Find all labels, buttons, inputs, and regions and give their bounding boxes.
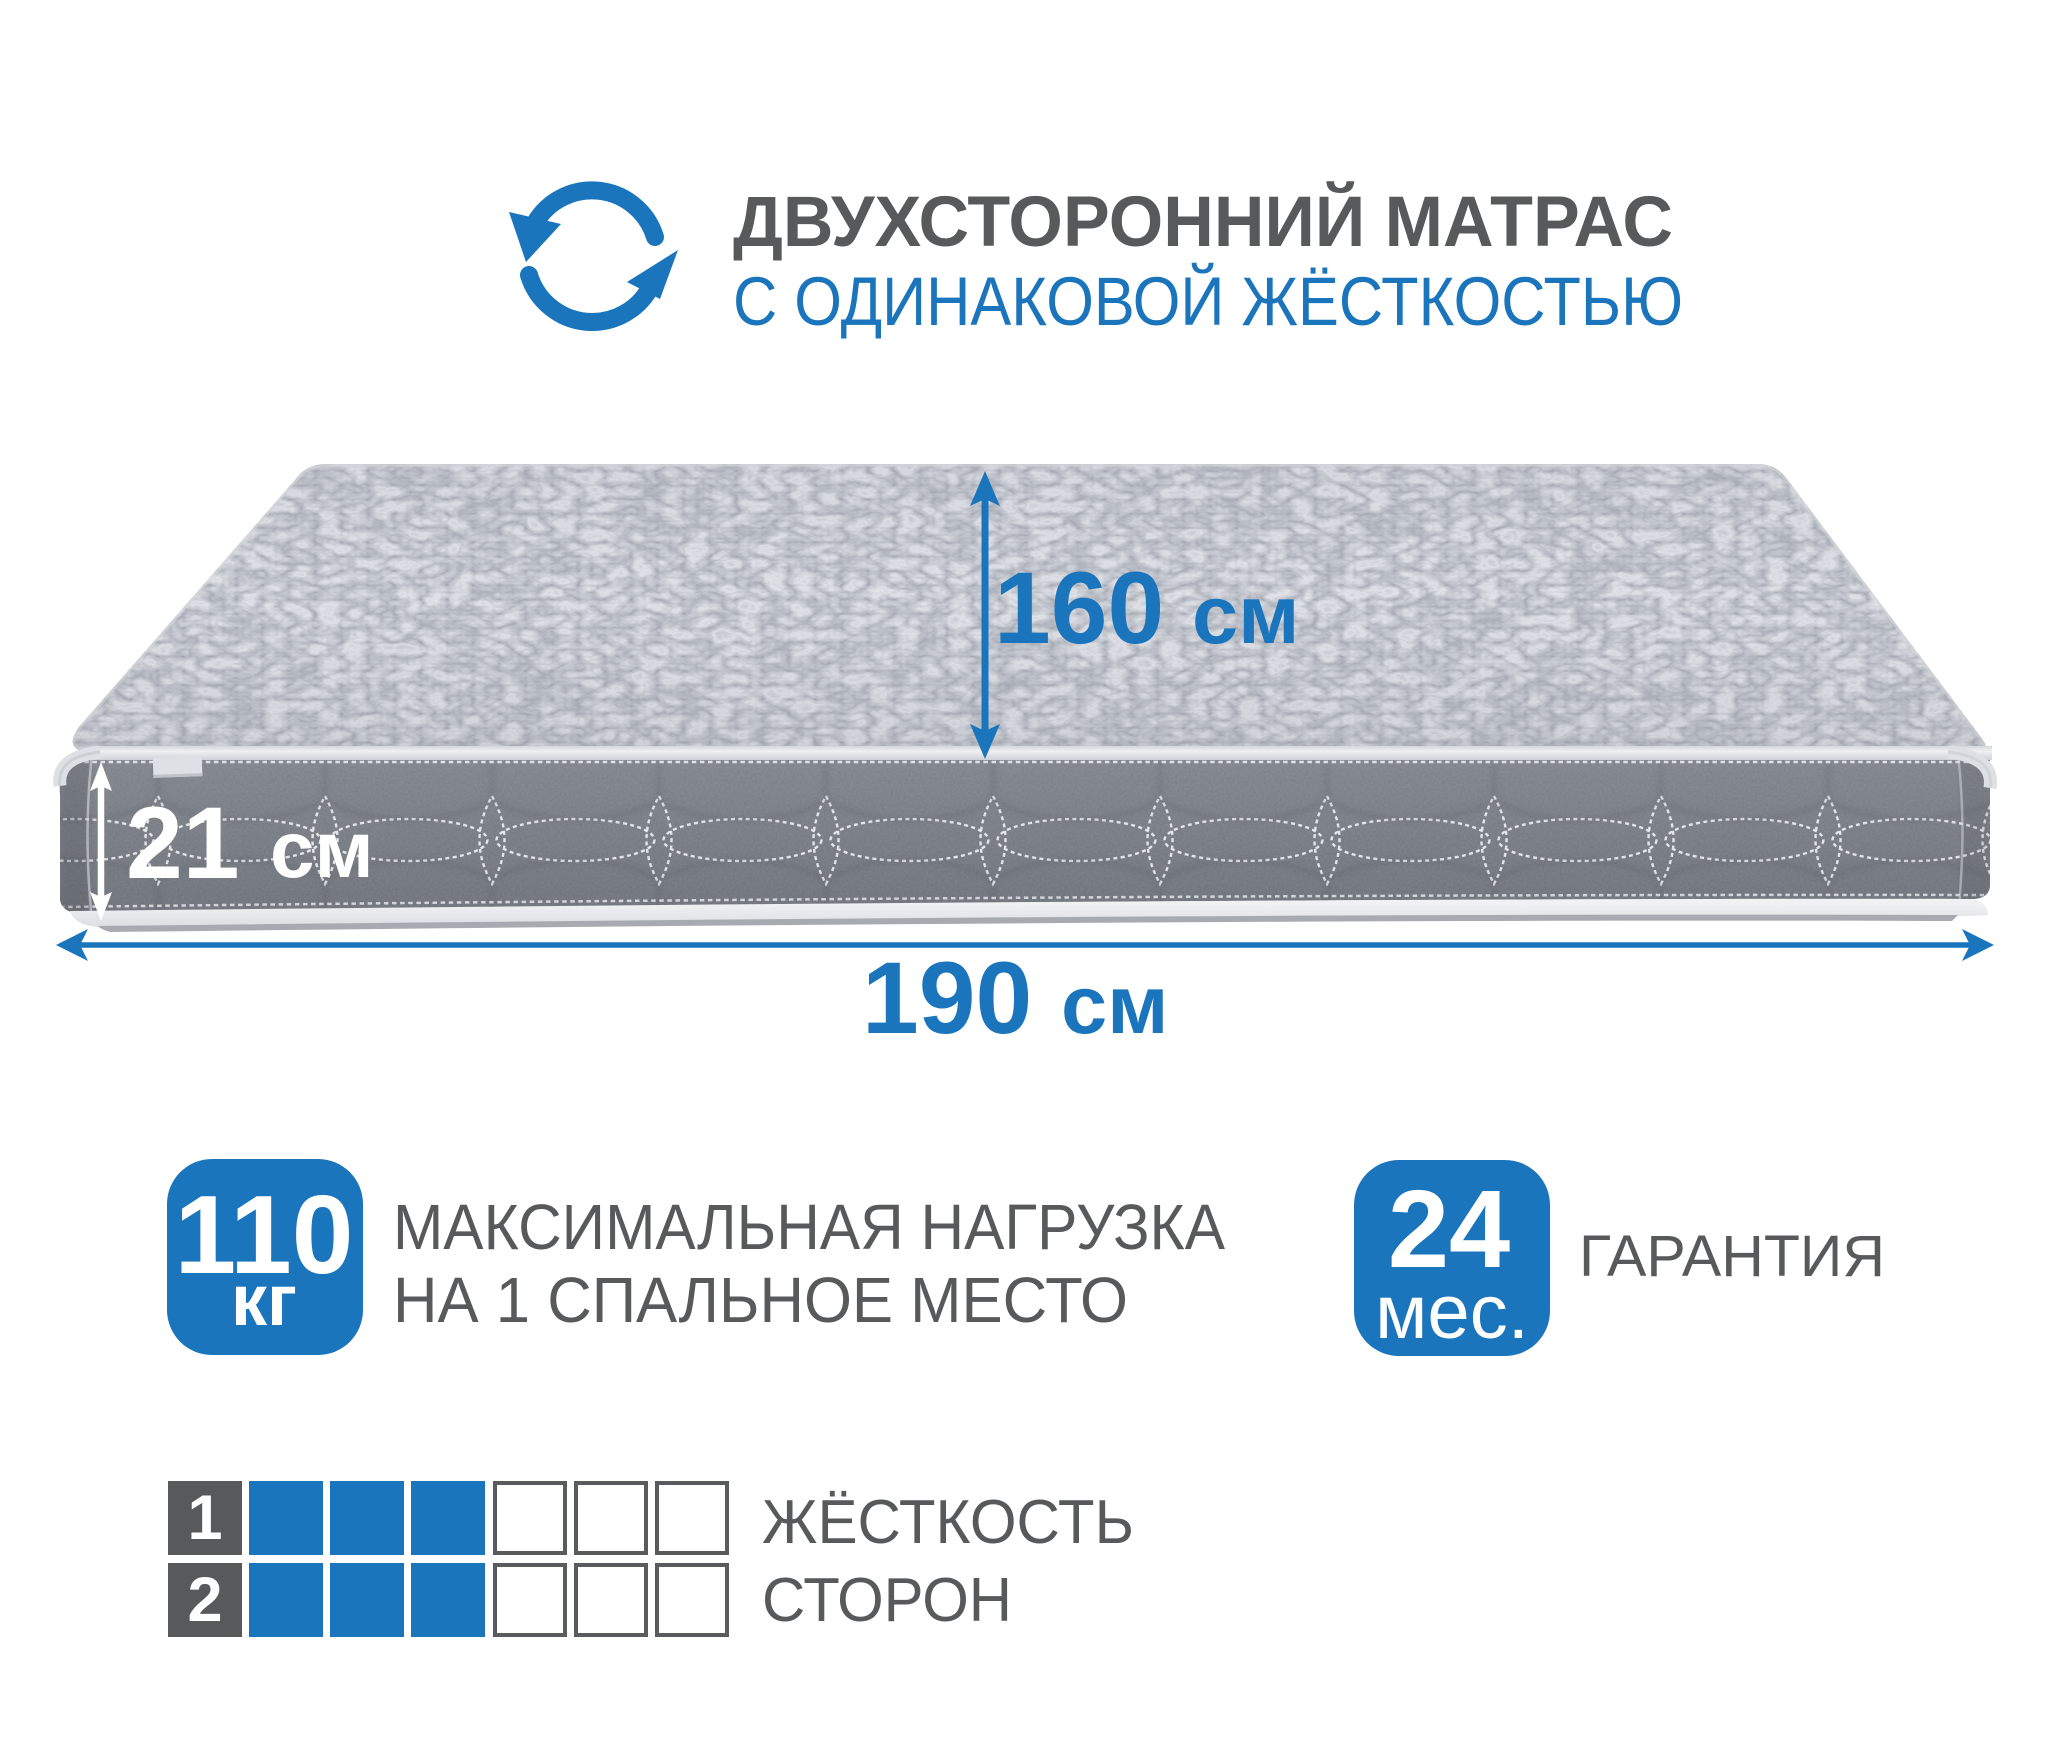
svg-text:НА 1 СПАЛЬНОЕ МЕСТО: НА 1 СПАЛЬНОЕ МЕСТО [393, 1264, 1128, 1336]
svg-text:см: см [270, 805, 374, 894]
svg-text:190: 190 [862, 941, 1032, 1055]
svg-text:кг: кг [231, 1261, 297, 1341]
svg-text:21: 21 [126, 786, 239, 900]
svg-text:ДВУХСТОРОННИЙ МАТРАС: ДВУХСТОРОННИЙ МАТРАС [733, 182, 1673, 262]
svg-text:см: см [1192, 568, 1300, 661]
svg-text:мес.: мес. [1375, 1270, 1529, 1355]
svg-text:МАКСИМАЛЬНАЯ НАГРУЗКА: МАКСИМАЛЬНАЯ НАГРУЗКА [393, 1191, 1225, 1263]
svg-text:1: 1 [187, 1483, 222, 1553]
svg-text:см: см [1061, 958, 1169, 1051]
svg-text:С ОДИНАКОВОЙ ЖЁСТКОСТЬЮ: С ОДИНАКОВОЙ ЖЁСТКОСТЬЮ [733, 263, 1683, 340]
svg-text:2: 2 [187, 1565, 222, 1635]
svg-text:ЖЁСТКОСТЬ: ЖЁСТКОСТЬ [762, 1488, 1134, 1557]
svg-text:ГАРАНТИЯ: ГАРАНТИЯ [1579, 1224, 1885, 1289]
svg-text:160: 160 [994, 551, 1164, 665]
svg-text:СТОРОН: СТОРОН [762, 1566, 1012, 1635]
